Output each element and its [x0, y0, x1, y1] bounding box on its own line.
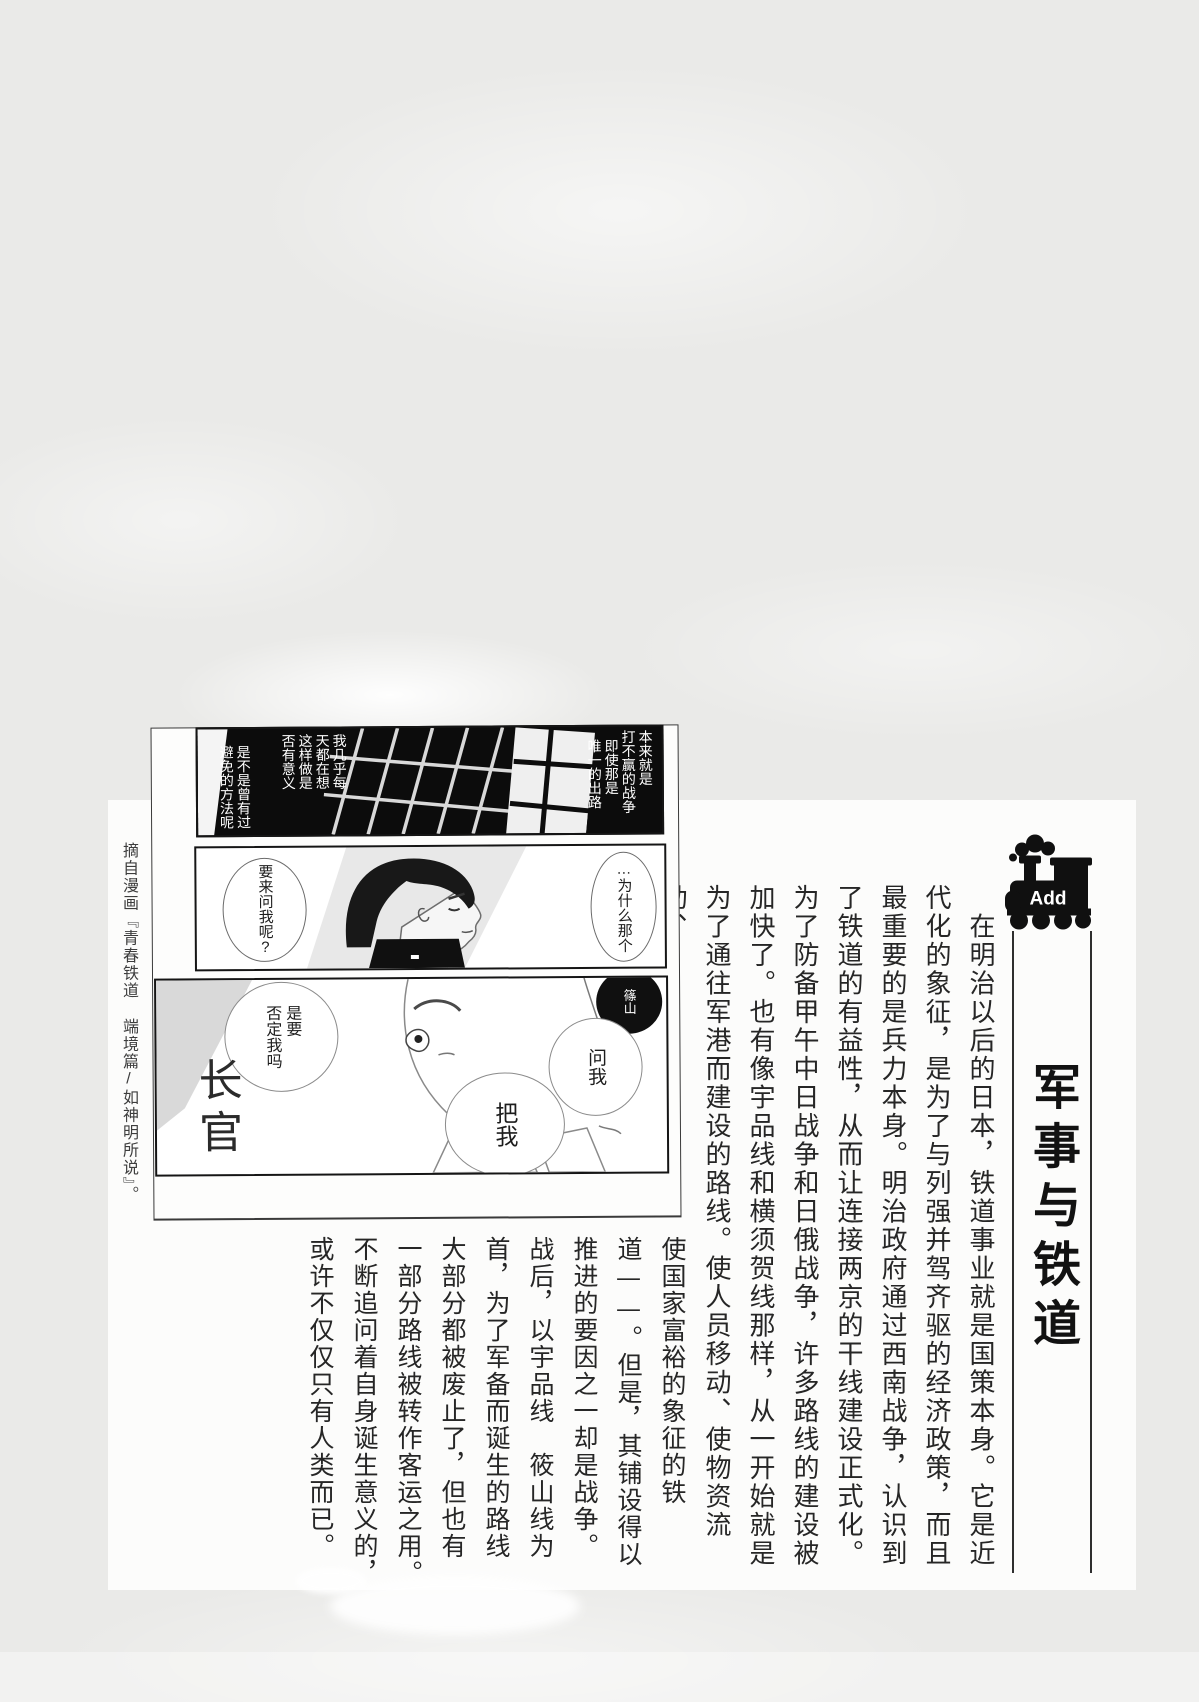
manga-panel-middle: 要来问我呢? …为什么那个: [194, 843, 667, 971]
manga-excerpt: 本来就是 打不赢的战争 即使那是 唯一的出路 我几乎每 天都在想 这样做是 否有…: [150, 724, 681, 1220]
speech-text: 我几乎每 天都在想 这样做是 否有意义: [280, 733, 348, 789]
speech-text: 问我: [582, 1048, 609, 1086]
text-column: 代化的象征，是为了与列强并驾齐驱的经济政策，而且: [914, 884, 958, 1574]
background-light-band: [0, 1652, 1199, 1702]
speech-text: 要来问我呢?: [255, 864, 274, 956]
badge-label: Add: [1030, 889, 1067, 910]
source-caption: 摘自漫画『青春铁道 端境篇/如神明所说』。: [112, 842, 144, 1222]
article-lower-columns: 使国家富裕的象征的铁 道——。但是，其铺设得以 推进的要因之一却是战争。 战后，…: [298, 1236, 694, 1590]
speech-text: …为什么那个: [614, 861, 633, 953]
train-badge: Add: [996, 833, 1096, 932]
title-rule-right: [1090, 931, 1092, 1573]
scanned-page: Add 军事与铁道 在明治以后的日本，铁道事业就是国策本身。它是近 代化的象征，…: [0, 0, 1199, 1702]
brush-swoosh-tail: [296, 1568, 366, 1594]
speech-text: 是要 否定我吗: [261, 1005, 301, 1069]
text-column: 或许不仅仅只有人类而已。: [298, 1236, 342, 1590]
speech-text: 本来就是 打不赢的战争: [620, 730, 655, 814]
text-column: 道——。但是，其铺设得以: [606, 1236, 650, 1590]
speech-text: 把我: [488, 1101, 522, 1147]
speech-bubble: …为什么那个: [590, 852, 657, 962]
speech-bubble: 把我: [445, 1072, 566, 1177]
text-column: 在明治以后的日本，铁道事业就是国策本身。它是近: [958, 884, 1002, 1574]
page-title: 军事与铁道: [1013, 1062, 1089, 1542]
brush-swoosh: [330, 1577, 580, 1635]
text-column: 为了通往军港而建设的路线。使人员移动、使物资流动、: [694, 884, 738, 1574]
speech-text: 即使那是 唯一的出路: [586, 739, 620, 809]
text-column: 一部分路线被转作客运之用。: [386, 1236, 430, 1590]
text-column: 不断追问着自身诞生意义的，: [342, 1236, 386, 1590]
speech-bubble: 问我: [548, 1018, 643, 1117]
text-column: 为了防备甲午中日战争和日俄战争，许多路线的建设被: [782, 884, 826, 1574]
shout-text: 长官: [184, 1057, 249, 1197]
text-column: 加快了。也有像宇品线和横须贺线那样，从一开始就是: [738, 884, 782, 1574]
speech-bubble: 要来问我呢?: [222, 858, 307, 963]
speech-text: 是不是曾有过 避免的方法呢: [218, 745, 253, 829]
text-column: 战后，以宇品线 筱山线为: [518, 1236, 562, 1590]
text-column: 推进的要因之一却是战争。: [562, 1236, 606, 1590]
manga-panel-top: 本来就是 打不赢的战争 即使那是 唯一的出路 我几乎每 天都在想 这样做是 否有…: [195, 724, 664, 837]
text-column: 使国家富裕的象征的铁: [650, 1236, 694, 1590]
text-column: 大部分都被废止了，但也有: [430, 1236, 474, 1590]
text-column: 了铁道的有益性，从而让连接两京的干线建设正式化。: [826, 884, 870, 1574]
name-tag-text: 篠山: [622, 989, 637, 1015]
text-column: 首，为了军备而诞生的路线: [474, 1236, 518, 1590]
text-column: 最重要的是兵力本身。明治政府通过西南战争，认识到: [870, 884, 914, 1574]
train-icon: Add: [996, 833, 1096, 932]
article-main-columns: 在明治以后的日本，铁道事业就是国策本身。它是近 代化的象征，是为了与列强并驾齐驱…: [694, 884, 1002, 1574]
